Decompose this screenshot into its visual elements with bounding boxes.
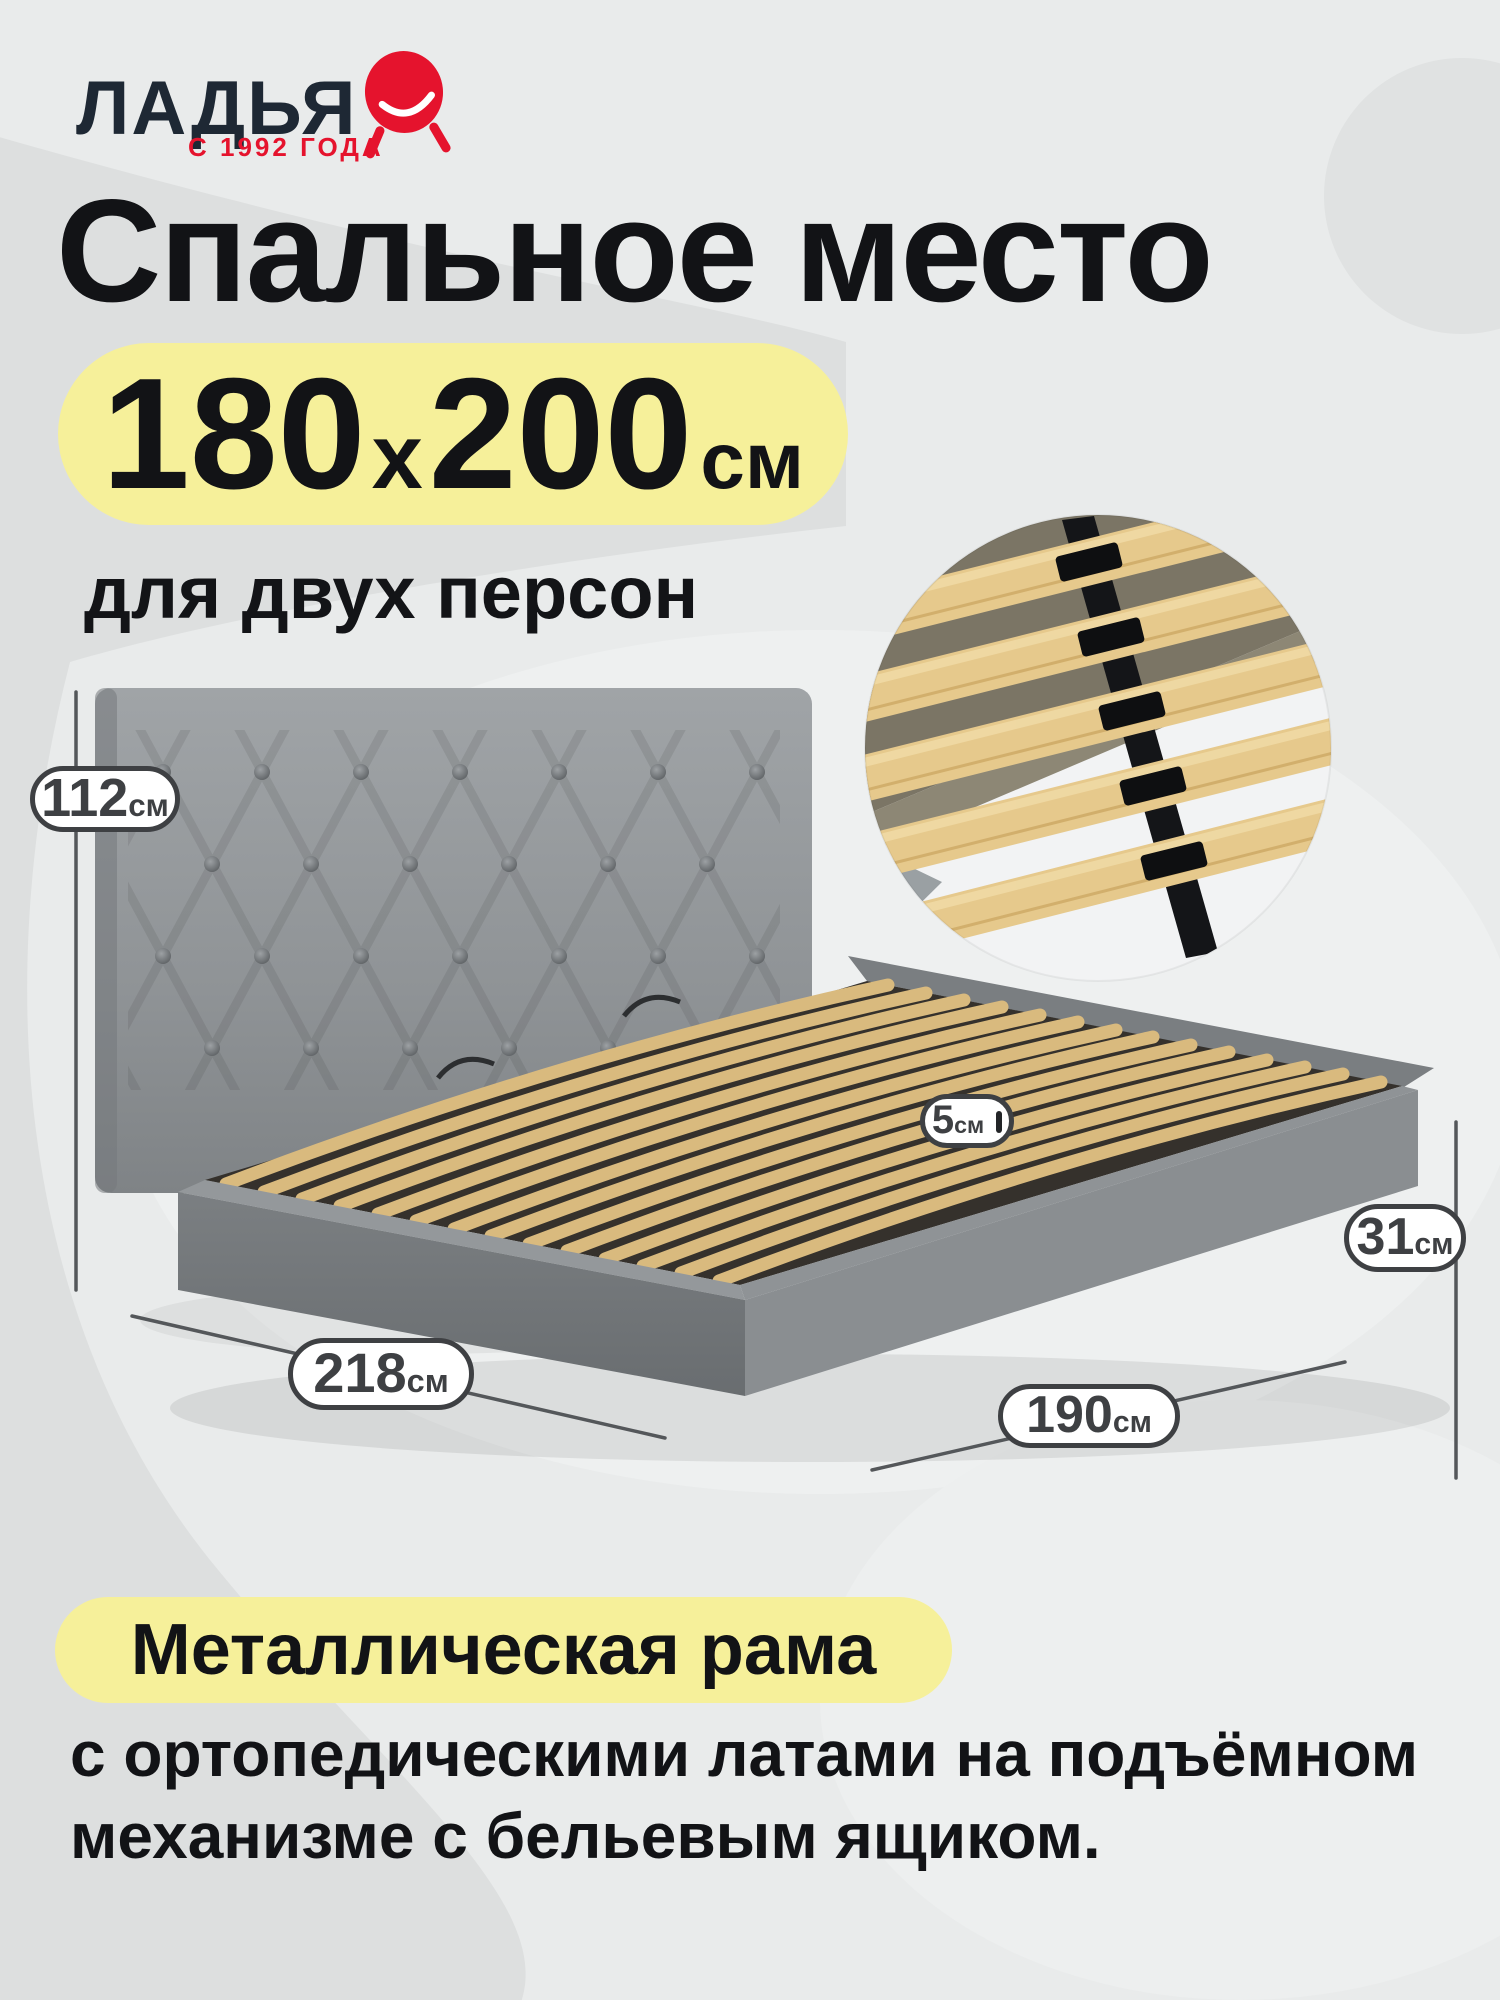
dimension-unit: см — [407, 1363, 449, 1399]
dimension-badge-bed-width: 190см — [998, 1384, 1180, 1448]
size-highlight-pill: 180x200см — [58, 343, 848, 525]
dimension-badge-slat-width: 5см — [920, 1094, 1014, 1148]
dimension-unit: см — [128, 788, 169, 823]
dimension-unit: см — [954, 1112, 984, 1138]
size-first: 180 — [102, 346, 366, 522]
dimension-badge-base-height: 31см — [1344, 1204, 1466, 1272]
dimension-value: 112 — [41, 768, 128, 828]
subtitle: для двух персон — [84, 556, 698, 630]
size-second: 200 — [429, 346, 693, 522]
page-title: Спальное место — [56, 178, 1212, 324]
dimension-value: 31 — [1357, 1208, 1415, 1266]
dimension-value: 190 — [1026, 1386, 1113, 1444]
footer-line-1: с ортопедическими латами на подъёмном — [70, 1722, 1418, 1786]
dimension-badge-headboard-height: 112см — [30, 766, 180, 832]
dimension-badge-bed-length: 218см — [288, 1338, 474, 1410]
pouf-smile-icon — [352, 40, 456, 166]
dimension-unit: см — [1113, 1406, 1152, 1439]
slat-thickness-tick — [996, 1111, 1002, 1133]
dimension-value: 5 — [932, 1098, 954, 1142]
product-card: ЛАДЬЯ С 1992 ГОДА Спальное место 180x200… — [0, 0, 1500, 2000]
dimension-value: 218 — [313, 1341, 406, 1404]
footer-highlight-pill: Металлическая рама — [55, 1597, 952, 1703]
dimension-unit: см — [1414, 1228, 1453, 1261]
footer-line-2: механизме с бельевым ящиком. — [70, 1804, 1101, 1868]
size-unit: см — [700, 416, 804, 505]
size-separator: x — [372, 406, 423, 508]
